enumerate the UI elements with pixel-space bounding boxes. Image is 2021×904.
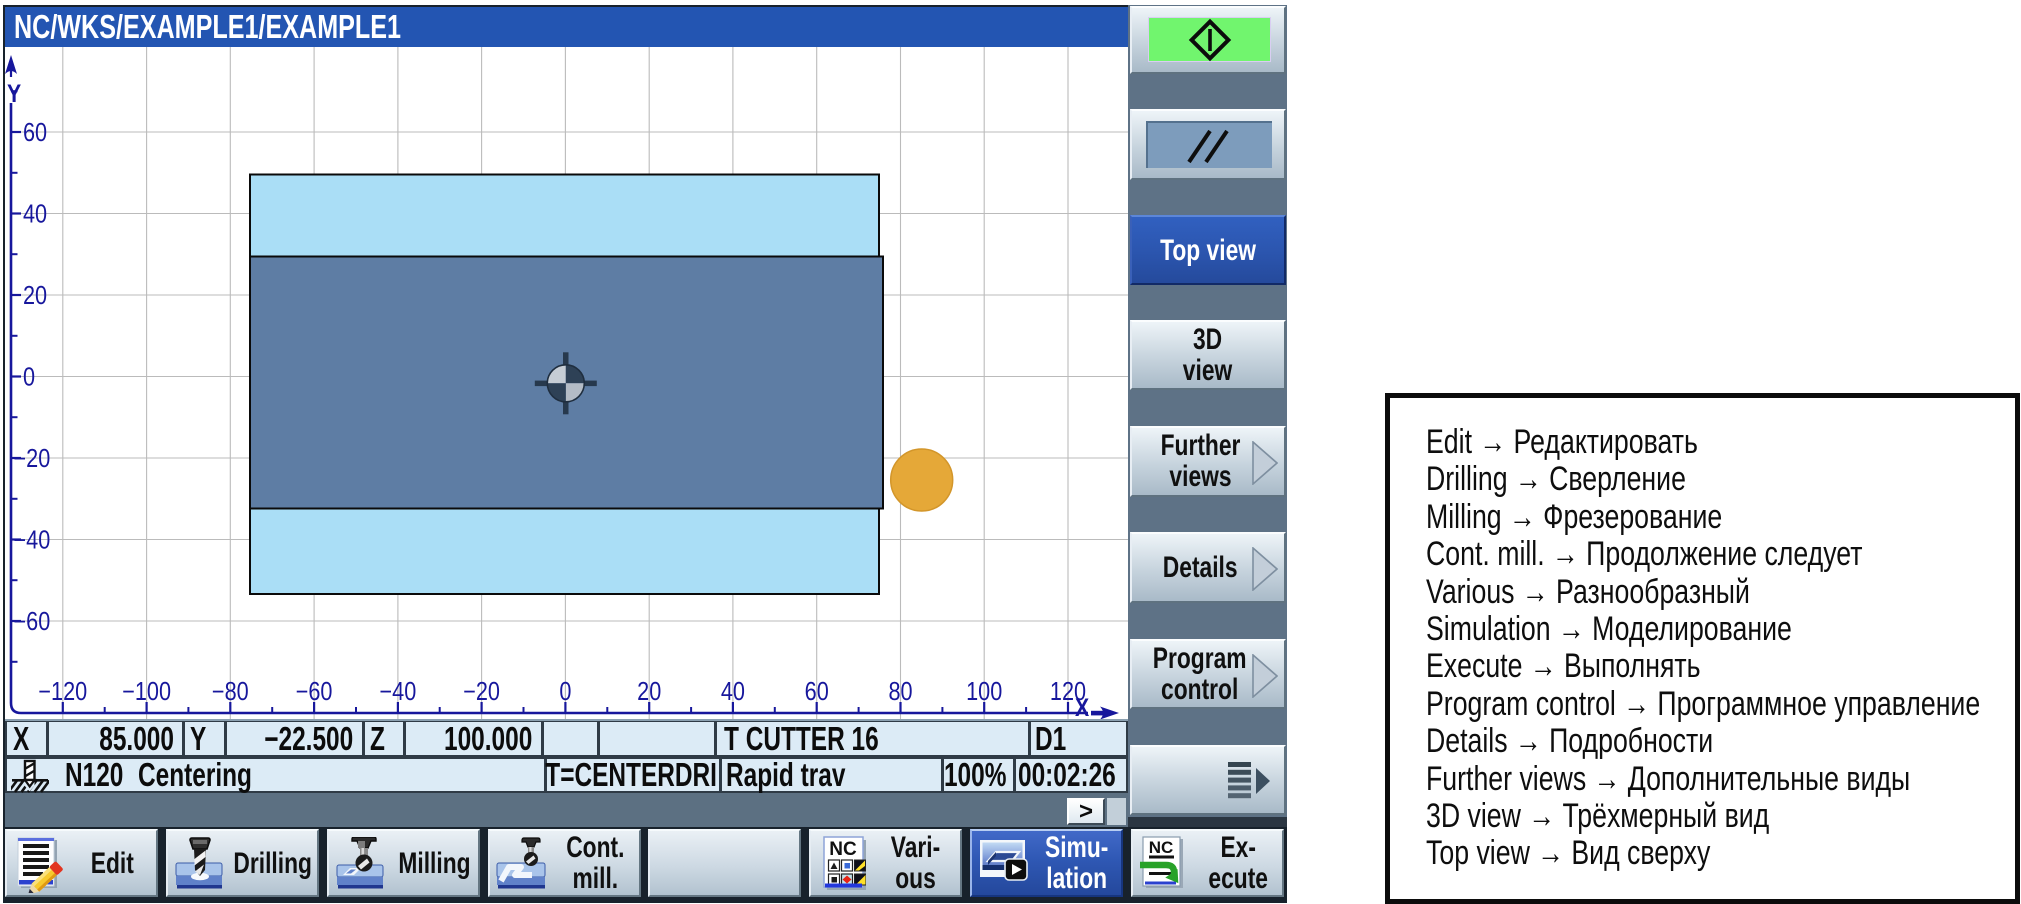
svg-text:40: 40 [721, 678, 745, 706]
svg-text:Y: Y [7, 79, 22, 107]
svg-text:NC: NC [1149, 838, 1174, 857]
svg-text:−60: −60 [14, 608, 51, 636]
svg-text:−120: −120 [38, 678, 87, 706]
svg-text:NC: NC [829, 839, 857, 860]
svg-text:100: 100 [966, 678, 1002, 706]
svg-text:20: 20 [23, 282, 47, 310]
svg-text:−40: −40 [14, 527, 51, 555]
svg-text:40: 40 [23, 201, 47, 229]
svg-text:20: 20 [637, 678, 661, 706]
svg-text:120: 120 [1050, 678, 1086, 706]
svg-text:60: 60 [805, 678, 829, 706]
svg-text:60: 60 [23, 119, 47, 147]
svg-text:−20: −20 [14, 445, 51, 473]
svg-text:−80: −80 [212, 678, 249, 706]
svg-text:−40: −40 [380, 678, 417, 706]
svg-text:−100: −100 [122, 678, 171, 706]
svg-text:0: 0 [559, 678, 571, 706]
svg-text:−60: −60 [296, 678, 333, 706]
svg-text:80: 80 [888, 678, 912, 706]
svg-text:0: 0 [23, 364, 35, 392]
svg-text:−20: −20 [463, 678, 500, 706]
